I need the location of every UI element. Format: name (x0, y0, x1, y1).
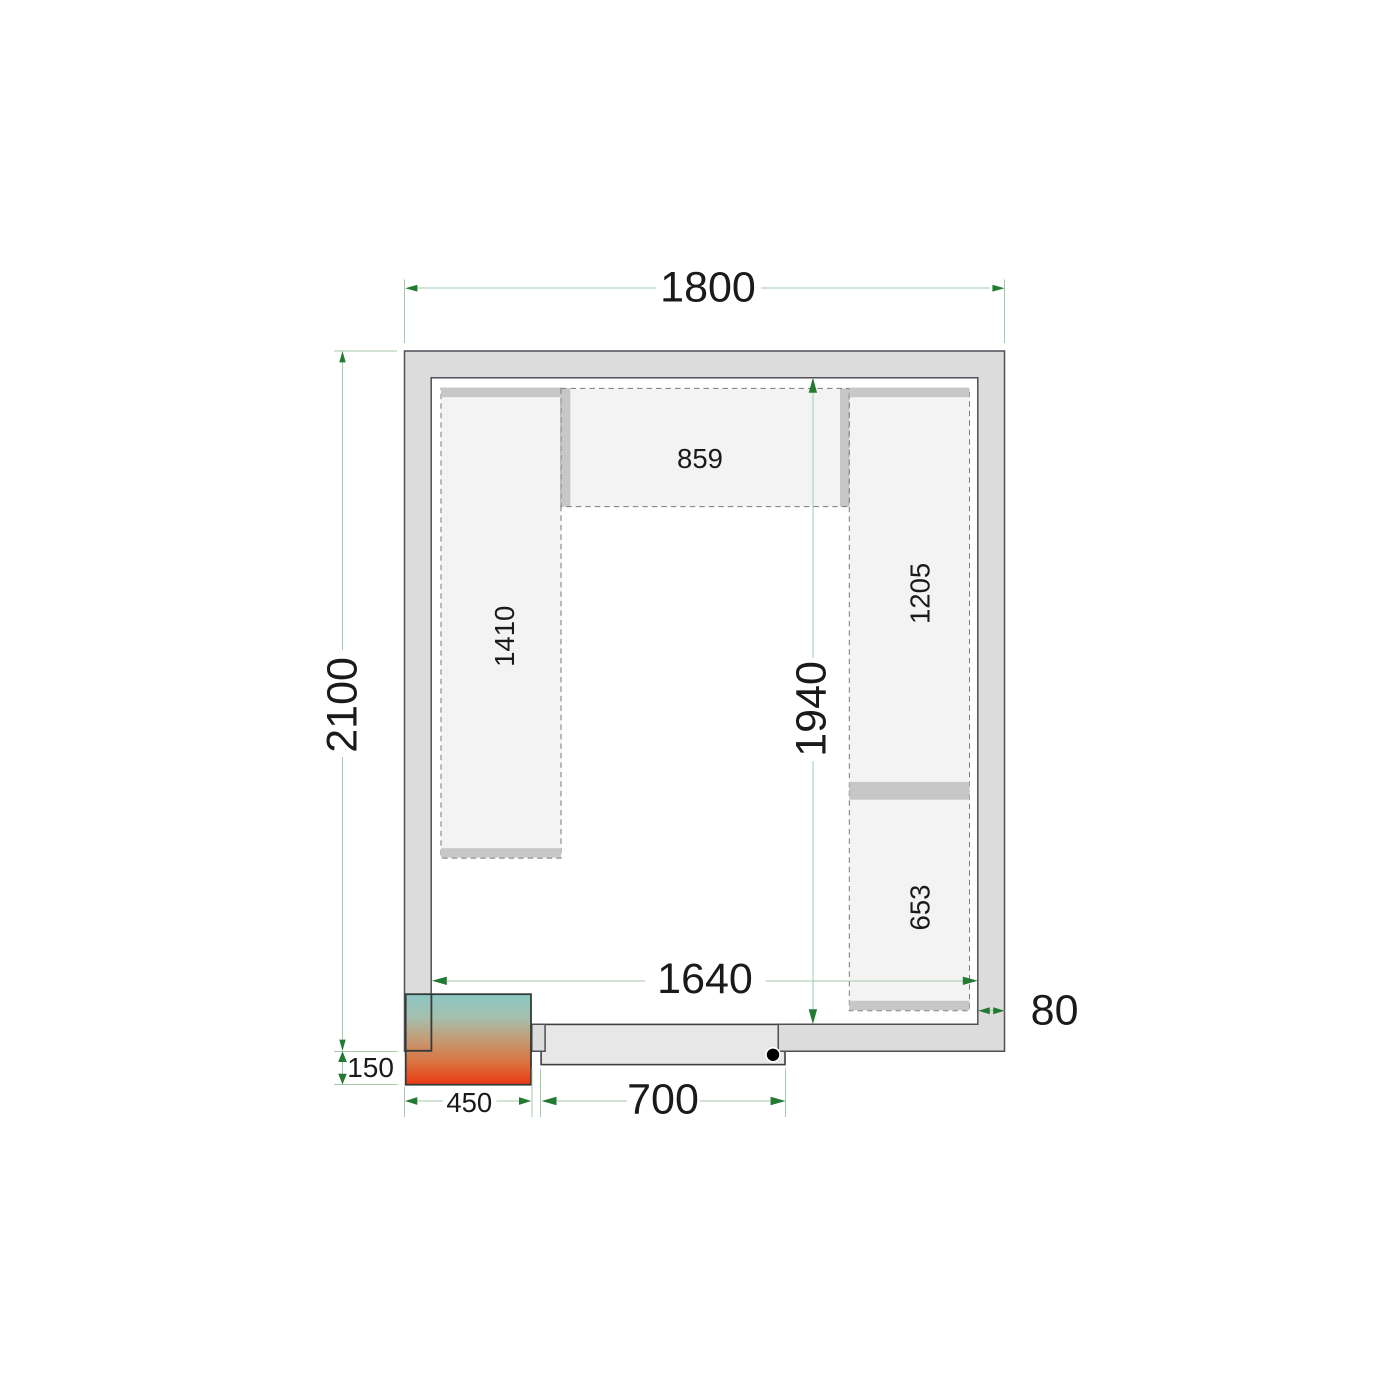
svg-text:1410: 1410 (489, 606, 520, 667)
svg-text:859: 859 (677, 443, 723, 474)
svg-text:2100: 2100 (319, 657, 367, 753)
svg-text:1205: 1205 (905, 563, 936, 624)
svg-text:1940: 1940 (788, 661, 836, 757)
svg-text:450: 450 (446, 1087, 492, 1118)
svg-text:150: 150 (347, 1052, 394, 1083)
svg-text:653: 653 (905, 885, 936, 931)
svg-text:700: 700 (627, 1076, 699, 1124)
svg-text:80: 80 (1031, 986, 1079, 1034)
svg-text:1640: 1640 (657, 955, 753, 1003)
svg-text:1800: 1800 (660, 264, 756, 312)
